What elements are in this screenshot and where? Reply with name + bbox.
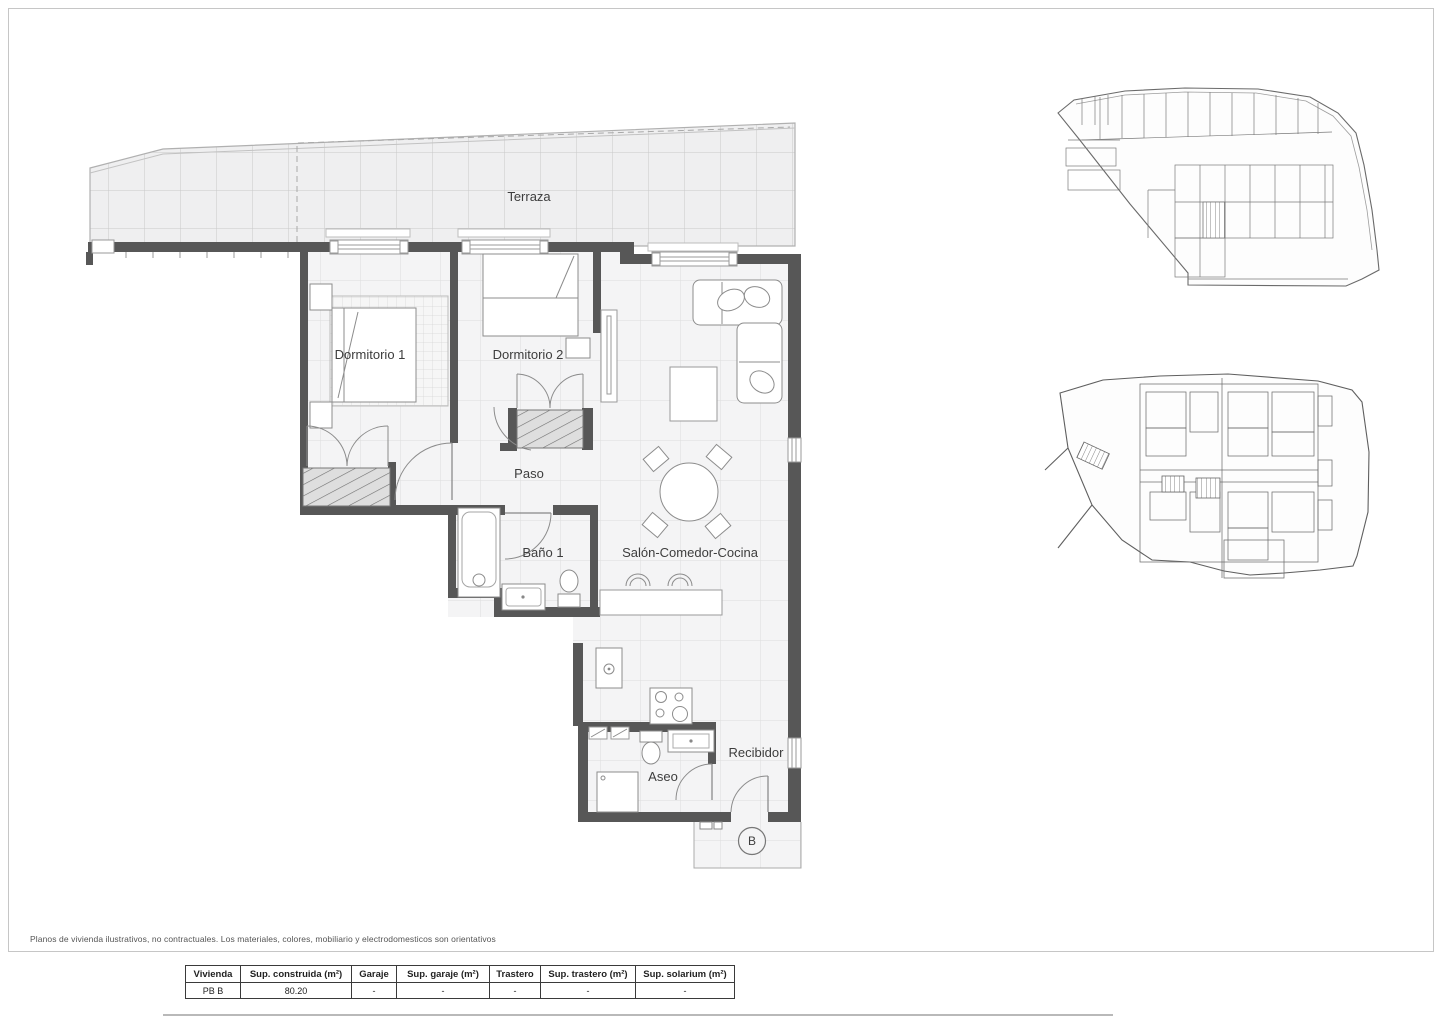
label-terraza: Terraza	[507, 189, 551, 204]
bath1-toilet-tank	[558, 594, 580, 607]
cell-vivienda: PB B	[186, 983, 241, 999]
dorm1-wardrobe	[303, 468, 390, 506]
unit-b-badge: B	[739, 828, 766, 855]
col-sup-garaje: Sup. garaje (m²)	[397, 966, 490, 983]
dorm1-nightstand	[310, 402, 332, 428]
label-recibidor: Recibidor	[729, 745, 785, 760]
dorm1-nightstand	[310, 284, 332, 310]
col-sup-construida: Sup. construida (m²)	[241, 966, 352, 983]
aseo-toilet-tank	[640, 731, 662, 742]
cell-trastero: -	[490, 983, 541, 999]
footer-divider	[163, 1014, 1113, 1016]
col-garaje: Garaje	[352, 966, 397, 983]
dorm2-bed	[483, 254, 578, 336]
coffee-table	[670, 367, 717, 421]
terraza-area	[90, 123, 795, 246]
bath1-toilet	[560, 570, 578, 592]
cell-sup-construida: 80.20	[241, 983, 352, 999]
parapet-ticks	[126, 252, 288, 258]
col-sup-solarium: Sup. solarium (m²)	[636, 966, 735, 983]
core-stairs	[1162, 476, 1184, 492]
col-sup-trastero: Sup. trastero (m²)	[541, 966, 636, 983]
col-trastero: Trastero	[490, 966, 541, 983]
aseo-toilet	[642, 742, 660, 764]
label-aseo: Aseo	[648, 769, 678, 784]
summary-table: Vivienda Sup. construida (m²) Garaje Sup…	[185, 965, 735, 999]
garage-stairs	[1203, 202, 1225, 238]
summary-data-row: PB B 80.20 - - - - -	[186, 983, 735, 999]
shower-tray	[597, 772, 638, 812]
label-salon: Salón-Comedor-Cocina	[622, 545, 759, 560]
cell-garaje: -	[352, 983, 397, 999]
main-floor-plan: B Terraza Dormitorio 1 Dormitorio 2 Paso…	[86, 123, 801, 868]
garage-key-plan	[1058, 88, 1379, 286]
unit-b-label: B	[748, 834, 756, 848]
kitchen-counter	[600, 590, 722, 615]
dining-table	[660, 463, 718, 521]
label-paso: Paso	[514, 466, 544, 481]
disclaimer-text: Planos de vivienda ilustrativos, no cont…	[30, 934, 496, 944]
brochure-page: B Terraza Dormitorio 1 Dormitorio 2 Paso…	[0, 0, 1440, 1024]
core-stairs	[1196, 478, 1220, 498]
floor-key-plan	[1045, 374, 1369, 578]
label-bano1: Baño 1	[522, 545, 563, 560]
dorm2-nightstand	[566, 338, 590, 358]
cell-sup-garaje: -	[397, 983, 490, 999]
cell-sup-trastero: -	[541, 983, 636, 999]
col-vivienda: Vivienda	[186, 966, 241, 983]
dorm2-wardrobe	[517, 410, 583, 448]
summary-header-row: Vivienda Sup. construida (m²) Garaje Sup…	[186, 966, 735, 983]
label-dormitorio2: Dormitorio 2	[493, 347, 564, 362]
plan-canvas: B Terraza Dormitorio 1 Dormitorio 2 Paso…	[0, 0, 1440, 1024]
entry-threshold	[700, 822, 722, 829]
cell-sup-solarium: -	[636, 983, 735, 999]
label-dormitorio1: Dormitorio 1	[335, 347, 406, 362]
